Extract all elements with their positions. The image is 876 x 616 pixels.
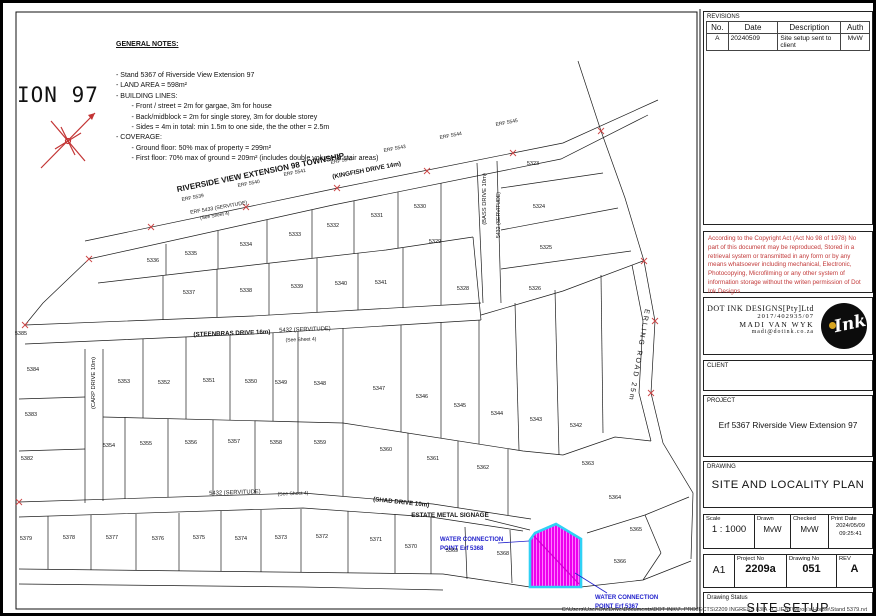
general-notes-line: - Front / street = 2m for gargae, 3m for…: [116, 102, 436, 112]
drawing-no-value: 051: [787, 563, 836, 575]
revisions-col-date: Date: [728, 22, 778, 34]
erf-number-5346: 5346: [416, 394, 428, 400]
boundary-line: [25, 303, 481, 325]
print-date-time: 09:25:41: [829, 531, 872, 539]
road-label-bass: (BASS DRIVE 10m): [482, 173, 488, 225]
print-date-label: Print Date: [829, 515, 872, 522]
erf-number-5372: 5372: [316, 534, 328, 540]
erf-number-5373: 5373: [275, 535, 287, 541]
erf-number-5333: 5333: [289, 232, 301, 238]
boundary-line: [645, 515, 661, 553]
project-value: Erf 5367 Riverside View Extension 97: [704, 420, 872, 430]
erf-number-5336: 5336: [147, 258, 159, 264]
erf-number-5335: 5335: [185, 251, 197, 257]
company-logo: Ink: [821, 303, 867, 349]
general-notes-line: - Sides = 4m in total: min 1.5m to one s…: [116, 123, 436, 133]
erf-number-5350: 5350: [245, 379, 257, 385]
general-notes-line: - LAND AREA = 598m²: [116, 81, 436, 91]
general-notes-line: - First floor: 70% max of ground = 209m²…: [116, 154, 436, 164]
erf-number-5375: 5375: [193, 535, 205, 541]
copyright-box: According to the Copyright Act (Act No 9…: [703, 231, 873, 293]
erf-number-5328: 5328: [457, 286, 469, 292]
company-reg-no: 2017/402935/07: [704, 313, 814, 320]
company-contact: MADI VAN WYK: [704, 320, 814, 329]
general-notes-line: - COVERAGE:: [116, 133, 436, 143]
township-corner-text: ION 97: [17, 83, 99, 107]
road-label-shad: (SHAD DRIVE 10m): [373, 496, 430, 509]
revisions-box: REVISIONS No. Date Description Auth A 20…: [703, 11, 873, 225]
boundary-line: [510, 530, 512, 583]
erf-number-5343: 5343: [530, 417, 542, 423]
erf-number-5347: 5347: [373, 386, 385, 392]
erf-number-5331: 5331: [371, 213, 383, 219]
sheet-size-cell: A1: [704, 555, 734, 587]
drawn-cell: Drawn MvW: [754, 515, 790, 548]
print-date-date: 2024/05/09: [829, 523, 872, 531]
erf-number-5369: 5369: [446, 548, 458, 554]
general-notes-title: GENERAL NOTES:: [116, 40, 436, 50]
erf-number-5366: 5366: [614, 559, 626, 565]
road-label-erling: ERLING ROAD 25m: [627, 308, 650, 402]
copyright-text: According to the Copyright Act (Act No 9…: [704, 232, 872, 300]
boundary-line: [581, 561, 691, 587]
erf-number-5338: 5338: [240, 288, 252, 294]
checked-value: MvW: [791, 525, 828, 534]
rev-label: REV: [837, 555, 872, 562]
erf-number-5351: 5351: [203, 378, 215, 384]
erf-number-5357: 5357: [228, 439, 240, 445]
company-box: DOT INK DESIGNS[Pty]Ltd 2017/402935/07 M…: [703, 297, 873, 355]
erf-number-5361: 5361: [427, 456, 439, 462]
erf-number-5344: 5344: [491, 411, 503, 417]
erf-number-5363: 5363: [582, 461, 594, 467]
erf-number-5334: 5334: [240, 242, 252, 248]
erf-number-5326: 5326: [529, 286, 541, 292]
boundary-line: [473, 237, 481, 320]
revisions-col-auth: Auth: [841, 22, 870, 34]
boundary-line: [19, 584, 443, 590]
erf-number-5353: 5353: [118, 379, 130, 385]
number-row: A1 Project No 2209a Drawing No 051 REV A: [703, 554, 873, 588]
erf-number-5376: 5376: [152, 536, 164, 542]
erf-number-5364: 5364: [609, 495, 621, 501]
erf-number-5345: 5345: [454, 403, 466, 409]
servitude-label: 5432 (SERVITUDE): [496, 192, 502, 238]
erf-number-5352: 5352: [158, 380, 170, 386]
general-notes: GENERAL NOTES: - Stand 5367 of Riverside…: [116, 19, 436, 186]
scale-cell: Scale 1 : 1000: [704, 515, 754, 548]
print-date-cell: Print Date 2024/05/09 09:25:41: [828, 515, 872, 548]
erf-number-5383: 5383: [25, 412, 37, 418]
erf-number-5348: 5348: [314, 381, 326, 387]
erf-number-5323: 5323: [527, 161, 539, 167]
project-no-value: 2209a: [735, 563, 786, 575]
boundary-line: [19, 449, 85, 451]
erf-number-5324: 5324: [533, 204, 545, 210]
boundary-line: [465, 527, 467, 579]
erf-number-5341: 5341: [375, 280, 387, 286]
erf-number-5377: 5377: [106, 535, 118, 541]
boundary-line: [501, 173, 603, 188]
erf-number-5358: 5358: [270, 440, 282, 446]
general-notes-line: - Stand 5367 of Riverside View Extension…: [116, 71, 436, 81]
revisions-col-desc: Description: [778, 22, 841, 34]
boundary-line: [515, 303, 519, 450]
boundary-line: [103, 417, 563, 455]
erf-number-5382: 5382: [21, 456, 33, 462]
boundary-line: [555, 290, 559, 455]
erf-label: ERF 5545: [495, 118, 518, 128]
road-label-steenbras: (STEENBRAS DRIVE 16m): [193, 329, 270, 339]
scale-row: Scale 1 : 1000 Drawn MvW Checked MvW Pri…: [703, 514, 873, 549]
erf-label: ERF 5539: [181, 193, 204, 203]
revision-auth: MvW: [841, 34, 870, 51]
drawing-box: DRAWING SITE AND LOCALITY PLAN: [703, 461, 873, 508]
erf-number-5384: 5384: [27, 367, 39, 373]
project-box: PROJECT Erf 5367 Riverside View Extensio…: [703, 395, 873, 457]
erf-label: ERF 5544: [439, 131, 462, 141]
erf-number-5385: 5385: [15, 331, 27, 337]
drawing-title: SITE AND LOCALITY PLAN: [704, 479, 872, 491]
drawing-no-label: Drawing No: [787, 555, 836, 562]
erf-number-5356: 5356: [185, 440, 197, 446]
erf-number-5379: 5379: [20, 536, 32, 542]
boundary-line: [501, 251, 631, 269]
erf-number-5362: 5362: [477, 465, 489, 471]
rev-cell: REV A: [836, 555, 872, 587]
signage-label: ESTATE METAL SIGNAGE: [411, 512, 489, 519]
erf-number-5342: 5342: [570, 423, 582, 429]
file-path: C:\Users\User\OneDrive\Documents\DOT INK…: [562, 607, 867, 613]
water-connection-label-5367: WATER CONNECTION: [595, 595, 658, 601]
revision-row: A 20240509 Site setup sent to client MvW: [707, 34, 870, 51]
general-notes-line: - Ground floor: 50% max of property = 29…: [116, 144, 436, 154]
boundary-line: [601, 275, 603, 433]
erf-number-5330: 5330: [414, 204, 426, 210]
erf-number-5374: 5374: [235, 536, 247, 542]
servitude-label: 5432 (SERVITUDE): [279, 326, 331, 334]
boundary-line: [643, 553, 661, 580]
project-no-cell: Project No 2209a: [734, 555, 786, 587]
erf-number-5360: 5360: [380, 447, 392, 453]
drawing-label: DRAWING: [704, 462, 872, 470]
erf-number-5339: 5339: [291, 284, 303, 290]
erf-number-5355: 5355: [140, 441, 152, 447]
servitude-label: 5432 (SERVITUDE): [209, 489, 261, 497]
drawing-sheet: RIVERSIDE VIEW EXTENSION 98 TOWNSHIP(KIN…: [0, 0, 876, 616]
erf-number-5359: 5359: [314, 440, 326, 446]
erf-number-5340: 5340: [335, 281, 347, 287]
company-name: DOT INK DESIGNS[Pty]Ltd: [704, 304, 814, 313]
boundary-line: [501, 208, 618, 230]
sheet-size: A1: [704, 564, 734, 576]
revisions-col-no: No.: [707, 22, 729, 34]
road-label-carp: (CARP DRIVE 10m): [91, 357, 97, 409]
revisions-table: No. Date Description Auth A 20240509 Sit…: [706, 21, 870, 51]
boundary-line: [19, 397, 85, 399]
erf-number-5325: 5325: [540, 245, 552, 251]
erf-number-5337: 5337: [183, 290, 195, 296]
boundary-line: [563, 437, 651, 455]
drawn-value: MvW: [755, 525, 790, 534]
revision-no: A: [707, 34, 729, 51]
status-label: Drawing Status: [704, 593, 872, 601]
project-label: PROJECT: [704, 396, 872, 404]
erf-number-5332: 5332: [327, 223, 339, 229]
checked-label: Checked: [791, 515, 828, 522]
erf-number-5349: 5349: [275, 380, 287, 386]
client-label: CLIENT: [704, 361, 872, 369]
drawn-label: Drawn: [755, 515, 790, 522]
erf-number-5378: 5378: [63, 535, 75, 541]
erf-number-5354: 5354: [103, 443, 115, 449]
general-notes-line: - Back/midblock = 2m for single storey, …: [116, 113, 436, 123]
erf-number-5368: 5368: [497, 551, 509, 557]
logo-ink-text: Ink: [832, 311, 868, 337]
general-notes-lines: - Stand 5367 of Riverside View Extension…: [116, 71, 436, 165]
checked-cell: Checked MvW: [790, 515, 828, 548]
see-sheet-label: (See Sheet 4): [285, 336, 316, 343]
boundary-line: [481, 261, 643, 315]
revision-date: 20240509: [728, 34, 778, 51]
client-box: CLIENT: [703, 360, 873, 391]
company-email: madi@dotink.co.za: [704, 329, 814, 335]
scale-value: 1 : 1000: [704, 524, 754, 535]
revision-desc: Site setup sent to client: [778, 34, 841, 51]
see-sheet-label: (See Sheet 4): [277, 490, 308, 497]
project-no-label: Project No: [735, 555, 786, 562]
erf-number-5370: 5370: [405, 544, 417, 550]
scale-label: Scale: [704, 515, 754, 522]
drawing-no-cell: Drawing No 051: [786, 555, 836, 587]
print-date-value: 2024/05/09 09:25:41: [829, 523, 872, 538]
water-connection-label-5368: WATER CONNECTION: [440, 537, 503, 543]
revisions-label: REVISIONS: [704, 12, 872, 20]
erf-number-5329: 5329: [429, 239, 441, 245]
boundary-line: [25, 259, 89, 325]
rev-value: A: [837, 563, 872, 575]
boundary-line: [19, 569, 530, 587]
north-arrow-icon: [41, 113, 95, 168]
boundary-line: [578, 61, 693, 559]
erf-number-5371: 5371: [370, 537, 382, 543]
erf-number-5365: 5365: [630, 527, 642, 533]
general-notes-line: - BUILDING LINES:: [116, 92, 436, 102]
